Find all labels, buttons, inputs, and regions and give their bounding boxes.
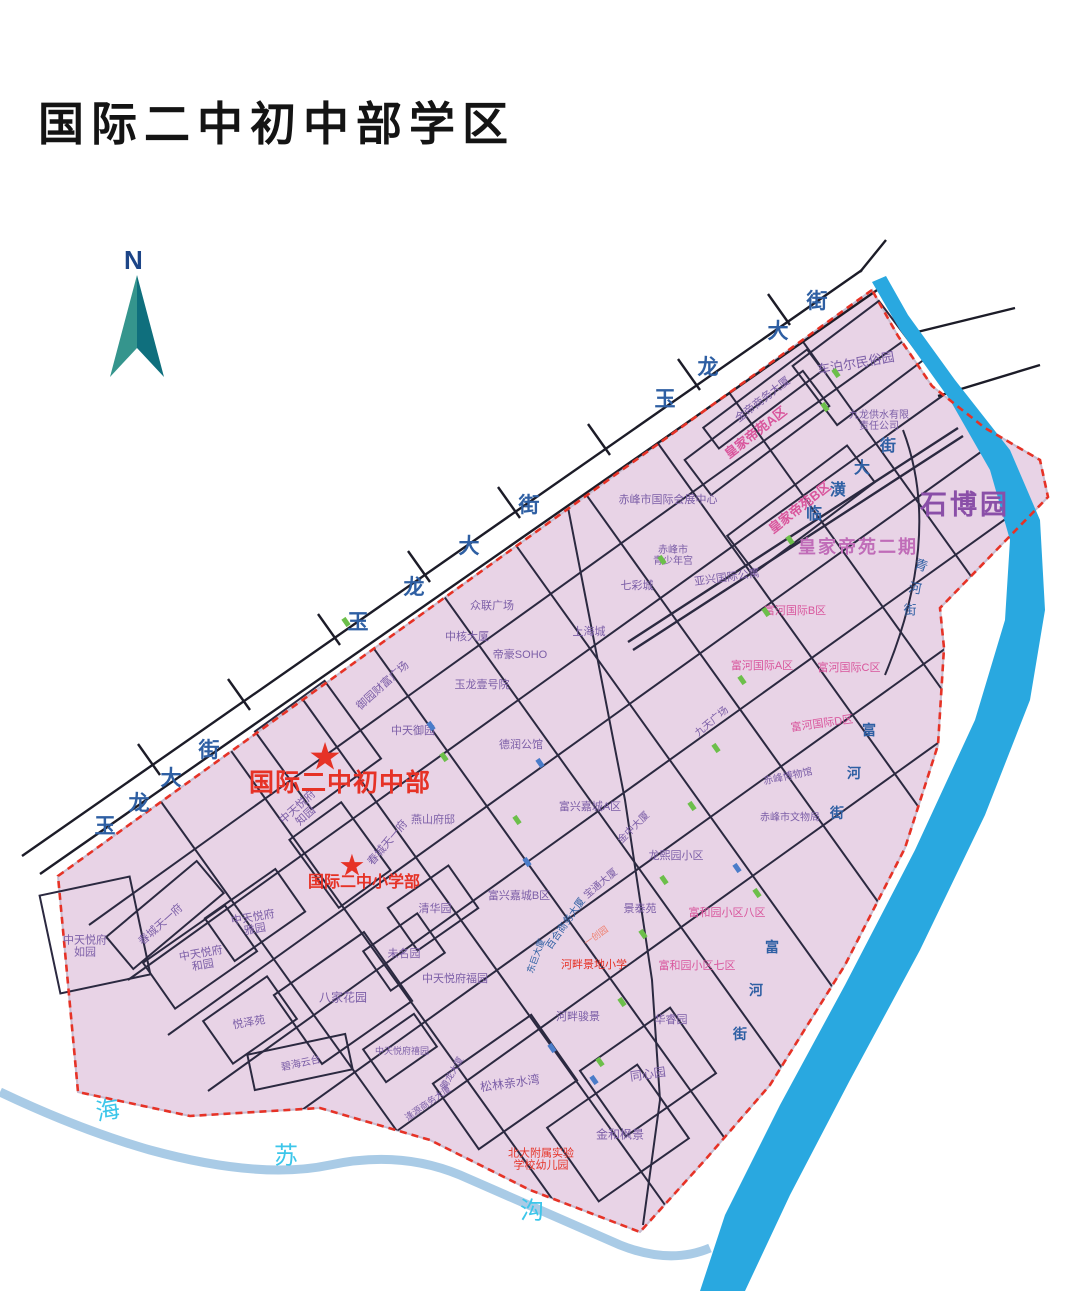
district-area (58, 290, 1048, 1232)
district-map (0, 0, 1080, 1291)
schoolmap-page: { "title": "国际二中初中部学区", "compass": { "la… (0, 0, 1080, 1291)
